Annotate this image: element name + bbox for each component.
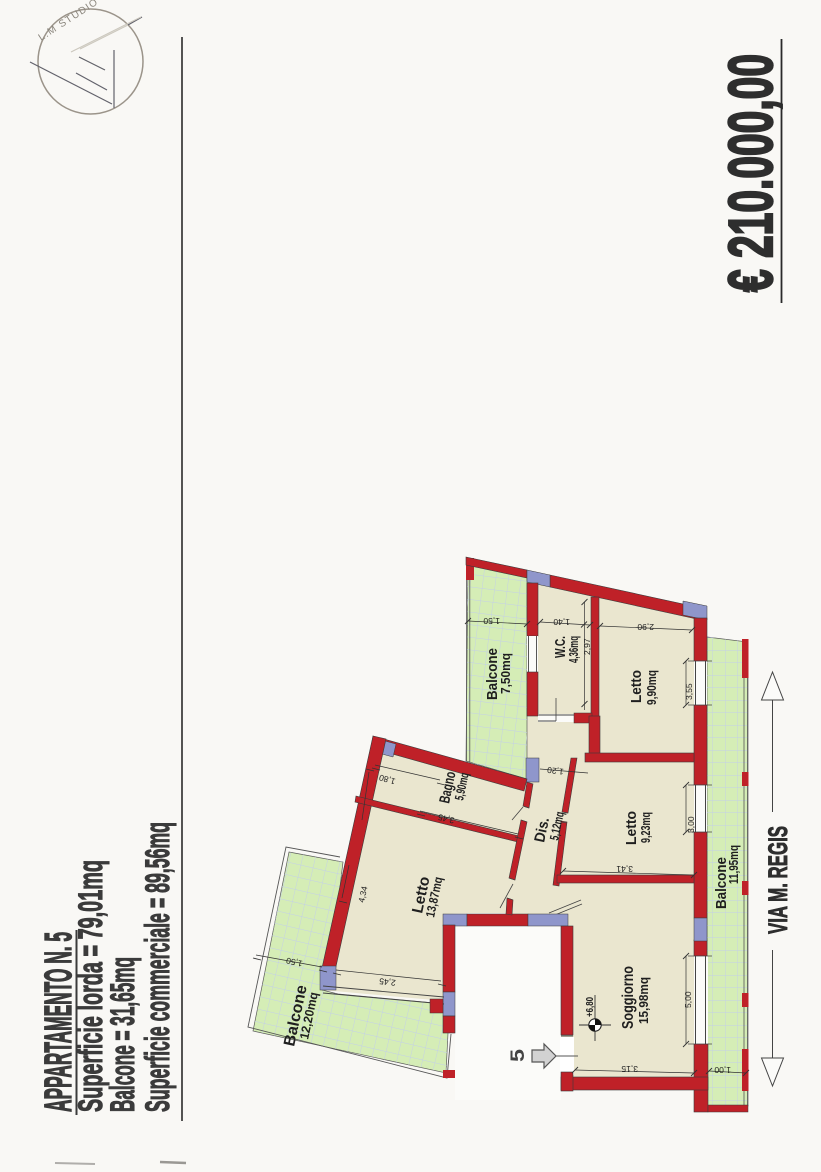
svg-text:5,00: 5,00	[683, 991, 693, 1008]
svg-text:7,50mq: 7,50mq	[499, 653, 513, 694]
svg-text:2,90: 2,90	[637, 622, 654, 632]
svg-text:3,41: 3,41	[616, 864, 633, 874]
svg-text:11,95mq: 11,95mq	[727, 845, 741, 884]
svg-text:2,45: 2,45	[378, 976, 396, 988]
svg-text:15,98mq: 15,98mq	[637, 977, 651, 1024]
svg-text:1,50: 1,50	[483, 616, 500, 626]
svg-text:Soggiorno: Soggiorno	[620, 966, 637, 1029]
svg-text:1,20: 1,20	[546, 765, 564, 777]
svg-text:2,97: 2,97	[582, 638, 592, 655]
svg-text:€ 210.000,00: € 210.000,00	[717, 54, 786, 292]
svg-text:Letto: Letto	[628, 670, 645, 703]
svg-text:VIA M. REGIS: VIA M. REGIS	[763, 826, 793, 934]
svg-text:3,55: 3,55	[684, 683, 694, 700]
svg-text:4,36mq: 4,36mq	[567, 636, 581, 663]
svg-text:Superficie commerciale = 89,56: Superficie commerciale = 89,56mq	[139, 822, 177, 1112]
svg-text:9,90mq: 9,90mq	[645, 670, 659, 705]
svg-text:Letto: Letto	[623, 811, 640, 845]
svg-text:1,40: 1,40	[553, 617, 570, 627]
svg-text:5: 5	[508, 1048, 529, 1062]
svg-text:1,00: 1,00	[714, 1065, 731, 1075]
svg-text:Balcone = 31,65mq: Balcone = 31,65mq	[104, 957, 142, 1112]
svg-text:3,15: 3,15	[621, 1064, 638, 1074]
svg-text:+6,80: +6,80	[584, 997, 596, 1017]
svg-text:9,23mq: 9,23mq	[639, 812, 653, 843]
